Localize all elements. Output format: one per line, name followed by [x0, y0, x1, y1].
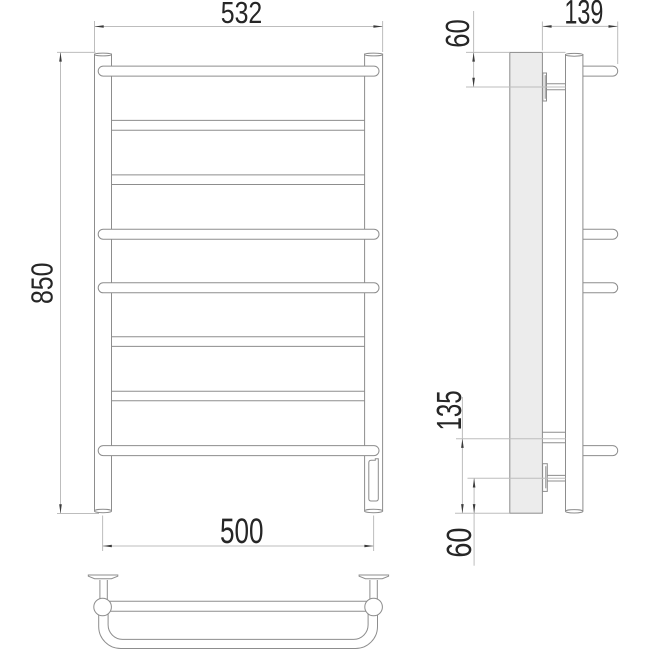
svg-text:60: 60: [440, 528, 479, 558]
svg-text:532: 532: [221, 0, 263, 30]
svg-text:135: 135: [430, 390, 469, 430]
svg-text:500: 500: [220, 511, 264, 551]
svg-text:850: 850: [26, 263, 60, 305]
svg-text:139: 139: [564, 0, 603, 32]
svg-text:60: 60: [440, 19, 477, 48]
